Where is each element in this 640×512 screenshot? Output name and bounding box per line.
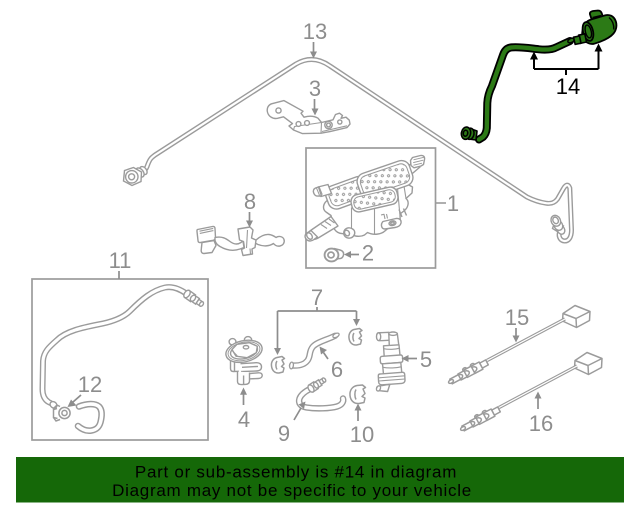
svg-text:13: 13: [303, 19, 327, 44]
svg-text:7: 7: [311, 285, 323, 310]
svg-text:8: 8: [244, 189, 256, 214]
svg-text:5: 5: [420, 347, 432, 372]
svg-text:Part or sub-assembly is #14 in: Part or sub-assembly is #14 in diagram: [135, 463, 457, 482]
svg-text:10: 10: [350, 422, 374, 447]
svg-text:3: 3: [309, 76, 321, 101]
svg-text:12: 12: [78, 372, 102, 397]
svg-text:9: 9: [278, 421, 290, 446]
svg-text:4: 4: [238, 407, 250, 432]
svg-text:16: 16: [529, 411, 553, 436]
svg-text:15: 15: [505, 305, 529, 330]
svg-text:1: 1: [447, 191, 459, 216]
svg-text:2: 2: [362, 241, 374, 266]
svg-text:14: 14: [556, 74, 580, 99]
svg-text:6: 6: [331, 357, 343, 382]
svg-text:11: 11: [109, 248, 132, 273]
svg-text:Diagram may not be specific to: Diagram may not be specific to your vehi…: [112, 481, 472, 500]
